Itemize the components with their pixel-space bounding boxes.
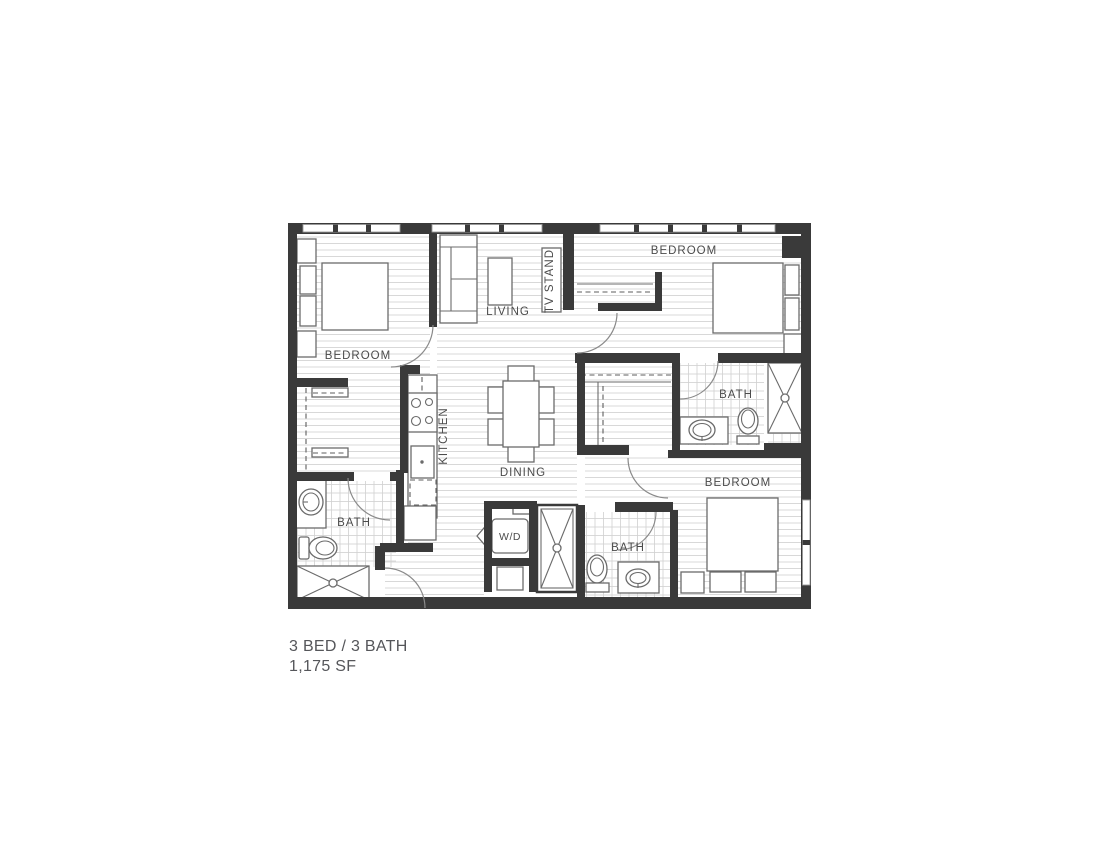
shower-drain-icon [781,394,789,402]
nightstand [784,334,802,356]
bath1-label: BATH [337,517,371,529]
pillow [300,266,316,294]
chair [508,366,534,382]
base-cabinet [404,506,436,540]
toilet-tank [299,537,309,559]
tv-stand-label: TV STAND [544,249,556,313]
bedroom1-label: BEDROOM [325,350,391,362]
living-label: LIVING [486,306,530,318]
washer-dryer-label: W/D [499,531,521,543]
column [782,236,802,258]
coffee-table [488,258,512,305]
bath2-label: BATH [719,389,753,401]
toilet-icon [587,555,607,583]
window [432,225,542,233]
toilet-icon [309,537,337,559]
kitchen-fixtures [404,375,437,540]
kitchen-label: KITCHEN [438,407,450,464]
pillow [745,572,776,592]
utility-box [497,567,523,590]
bedroom3-label: BEDROOM [705,477,771,489]
chair [508,446,534,462]
shower-drain-icon [329,579,337,587]
stove-icon [408,393,437,432]
pillow [300,296,316,326]
bath3-label: BATH [611,542,645,554]
floor-plan-page: BEDROOM LIVING TV STAND BEDROOM BATH KIT… [0,0,1100,844]
nightstand [297,239,316,263]
shower-drain-icon [553,544,561,552]
pillow [710,572,741,592]
dining-label: DINING [500,467,546,479]
unit-area-caption: 1,175 SF [289,658,356,675]
window [303,225,400,233]
pillow [785,265,799,295]
window [600,225,775,233]
central-shower [537,505,577,592]
chair [488,387,504,413]
dining-table [503,381,539,447]
nightstand [297,331,316,357]
bed [707,498,778,571]
chair [488,419,504,445]
nightstand [681,572,704,593]
unit-type-caption: 3 BED / 3 BATH [289,638,408,655]
chair [538,387,554,413]
toilet-tank [586,583,609,592]
toilet-tank [737,436,759,444]
chair [538,419,554,445]
floor-plan-drawing: BEDROOM LIVING TV STAND BEDROOM BATH KIT… [0,0,1100,844]
bed [322,263,388,330]
toilet-icon [738,408,758,434]
bedroom2-label: BEDROOM [651,245,717,257]
pillow [785,298,799,330]
bed [713,263,783,333]
